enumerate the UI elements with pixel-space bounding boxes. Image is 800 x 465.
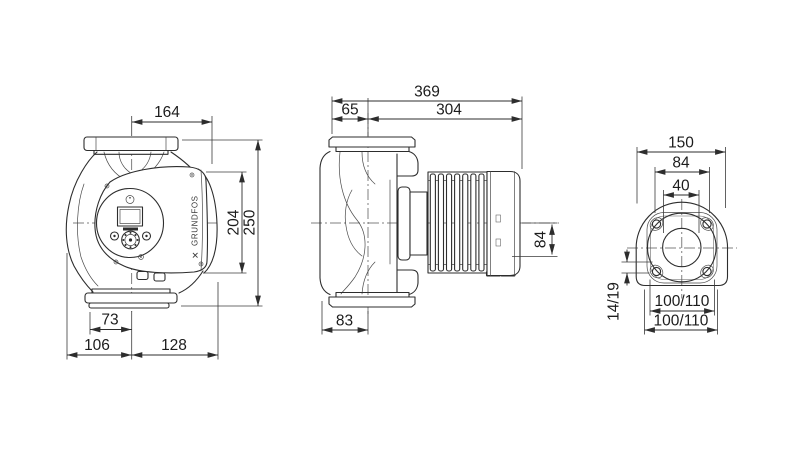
side-neck [410, 192, 427, 255]
front-top-flange [84, 137, 178, 151]
flange-centerlines [627, 199, 737, 299]
nav-wheel [122, 231, 140, 249]
dim-label-foot-offset: 73 [101, 312, 118, 329]
dim-label-head-width: 84 [672, 155, 690, 172]
front-base-plate [85, 293, 177, 303]
dim-label-bore: 40 [672, 178, 690, 195]
dim-label-axis-to-bottom: 84 [533, 231, 550, 249]
side-bottom-flange [329, 297, 415, 307]
front-cable-gland-1 [137, 272, 148, 280]
front-base-step [92, 289, 170, 293]
side-top-flange [329, 137, 415, 147]
brand-logo-icon: ✕ [191, 251, 201, 259]
dim-label-top-width: 164 [154, 104, 180, 121]
dim-label-overall-length: 369 [414, 84, 440, 101]
dim-label-left-width: 106 [84, 337, 110, 354]
dim-label-housing-width: 83 [336, 313, 353, 330]
dim-label-right-width: 128 [161, 337, 187, 354]
side-top-flange-lip [336, 147, 409, 152]
dim-label-bolt-pitch-inner: 100/110 [655, 293, 710, 310]
side-bottom-flange-lip [336, 293, 409, 298]
pump-drawing-svg: GRUNDFOS ✕ 164 204 250 73 106 128 [0, 0, 800, 465]
side-stator-fins [428, 172, 487, 273]
dimensional-drawing-canvas: GRUNDFOS ✕ 164 204 250 73 106 128 [0, 0, 800, 465]
dim-label-bolt-pitch-outer: 100/110 [654, 313, 709, 330]
front-flange-lip [94, 151, 168, 155]
front-sensor-dot [129, 197, 131, 199]
brand-label: GRUNDFOS [191, 195, 200, 246]
dim-label-control-height: 204 [226, 209, 243, 235]
front-base-foot [89, 303, 169, 308]
dim-label-axis-to-end: 304 [436, 102, 462, 119]
side-clamp-ring [398, 187, 410, 260]
dim-label-bolt-hole: 14/19 [606, 282, 623, 321]
dim-label-flange-to-axis: 65 [341, 102, 358, 119]
dim-label-overall-width: 150 [668, 135, 694, 152]
side-end-cap [487, 172, 520, 276]
flange-view: 150 84 40 14/19 100/110 100/110 [606, 135, 738, 335]
front-view: GRUNDFOS ✕ 164 204 250 73 106 128 [66, 104, 262, 360]
dim-label-overall-height: 250 [242, 209, 259, 235]
front-cable-gland-2 [154, 273, 165, 281]
display-label-bar [123, 228, 138, 231]
side-view: 369 65 304 83 84 [311, 84, 559, 335]
